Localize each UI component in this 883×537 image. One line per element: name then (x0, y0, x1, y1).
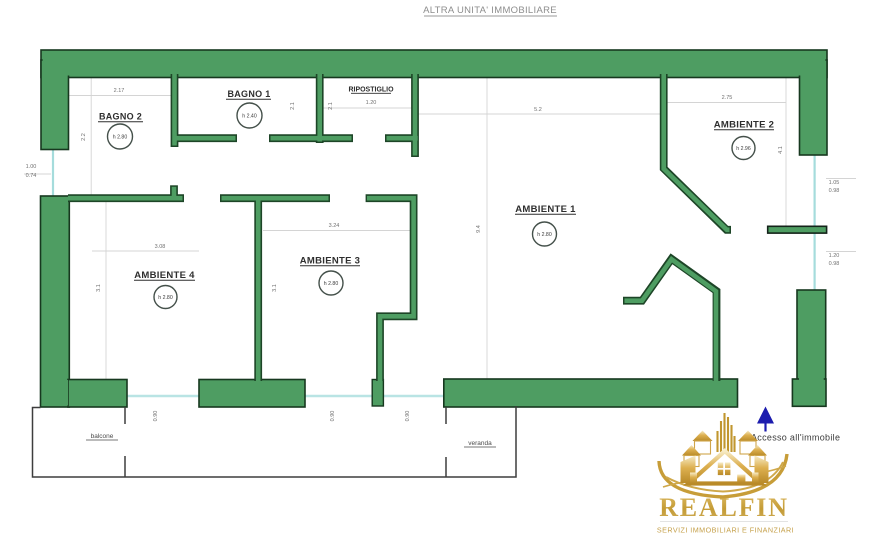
svg-text:balcone: balcone (91, 433, 114, 440)
svg-text:0.98: 0.98 (829, 261, 840, 267)
svg-text:1.20: 1.20 (366, 100, 377, 106)
svg-text:3.24: 3.24 (329, 223, 340, 229)
svg-text:2.75: 2.75 (722, 95, 733, 101)
svg-text:2.17: 2.17 (114, 88, 125, 94)
svg-text:4.1: 4.1 (778, 146, 784, 154)
svg-text:RIPOSTIGLIO: RIPOSTIGLIO (348, 87, 394, 94)
svg-text:9.4: 9.4 (476, 225, 482, 233)
svg-text:Accesso all'immobile: Accesso all'immobile (751, 433, 840, 443)
svg-text:2.1: 2.1 (290, 102, 296, 110)
svg-text:AMBIENTE 1: AMBIENTE 1 (515, 204, 576, 215)
svg-text:REALFIN: REALFIN (659, 493, 789, 522)
svg-text:5.2: 5.2 (534, 107, 542, 113)
svg-text:1.05: 1.05 (829, 180, 840, 186)
svg-text:3.1: 3.1 (272, 284, 278, 292)
svg-text:h 2.96: h 2.96 (736, 146, 751, 152)
svg-text:0.90: 0.90 (405, 411, 411, 422)
svg-text:2.1: 2.1 (328, 102, 334, 110)
svg-text:0.90: 0.90 (153, 411, 159, 422)
svg-text:h 2.40: h 2.40 (242, 114, 257, 120)
svg-text:h 2.80: h 2.80 (324, 281, 339, 287)
svg-text:AMBIENTE 3: AMBIENTE 3 (300, 256, 361, 267)
svg-text:0.98: 0.98 (829, 188, 840, 194)
svg-text:h 2.80: h 2.80 (113, 135, 128, 141)
svg-text:AMBIENTE 4: AMBIENTE 4 (134, 270, 195, 281)
svg-text:0.90: 0.90 (330, 411, 336, 422)
svg-text:1.00: 1.00 (26, 164, 37, 170)
svg-text:SERVIZI IMMOBILIARI E FINANZIA: SERVIZI IMMOBILIARI E FINANZIARI (657, 526, 794, 535)
svg-text:1.20: 1.20 (829, 253, 840, 259)
svg-text:3.1: 3.1 (96, 284, 102, 292)
svg-text:2.2: 2.2 (81, 133, 87, 141)
svg-text:3.08: 3.08 (155, 244, 166, 250)
svg-text:BAGNO 2: BAGNO 2 (99, 112, 142, 122)
svg-text:h 2.80: h 2.80 (537, 232, 552, 238)
svg-text:veranda: veranda (468, 440, 492, 447)
svg-text:ALTRA UNITA' IMMOBILIARE: ALTRA UNITA' IMMOBILIARE (423, 5, 557, 16)
svg-text:0.74: 0.74 (26, 173, 37, 179)
svg-text:BAGNO 1: BAGNO 1 (227, 89, 270, 99)
svg-text:h 2.80: h 2.80 (158, 295, 173, 301)
svg-text:AMBIENTE 2: AMBIENTE 2 (714, 120, 775, 131)
